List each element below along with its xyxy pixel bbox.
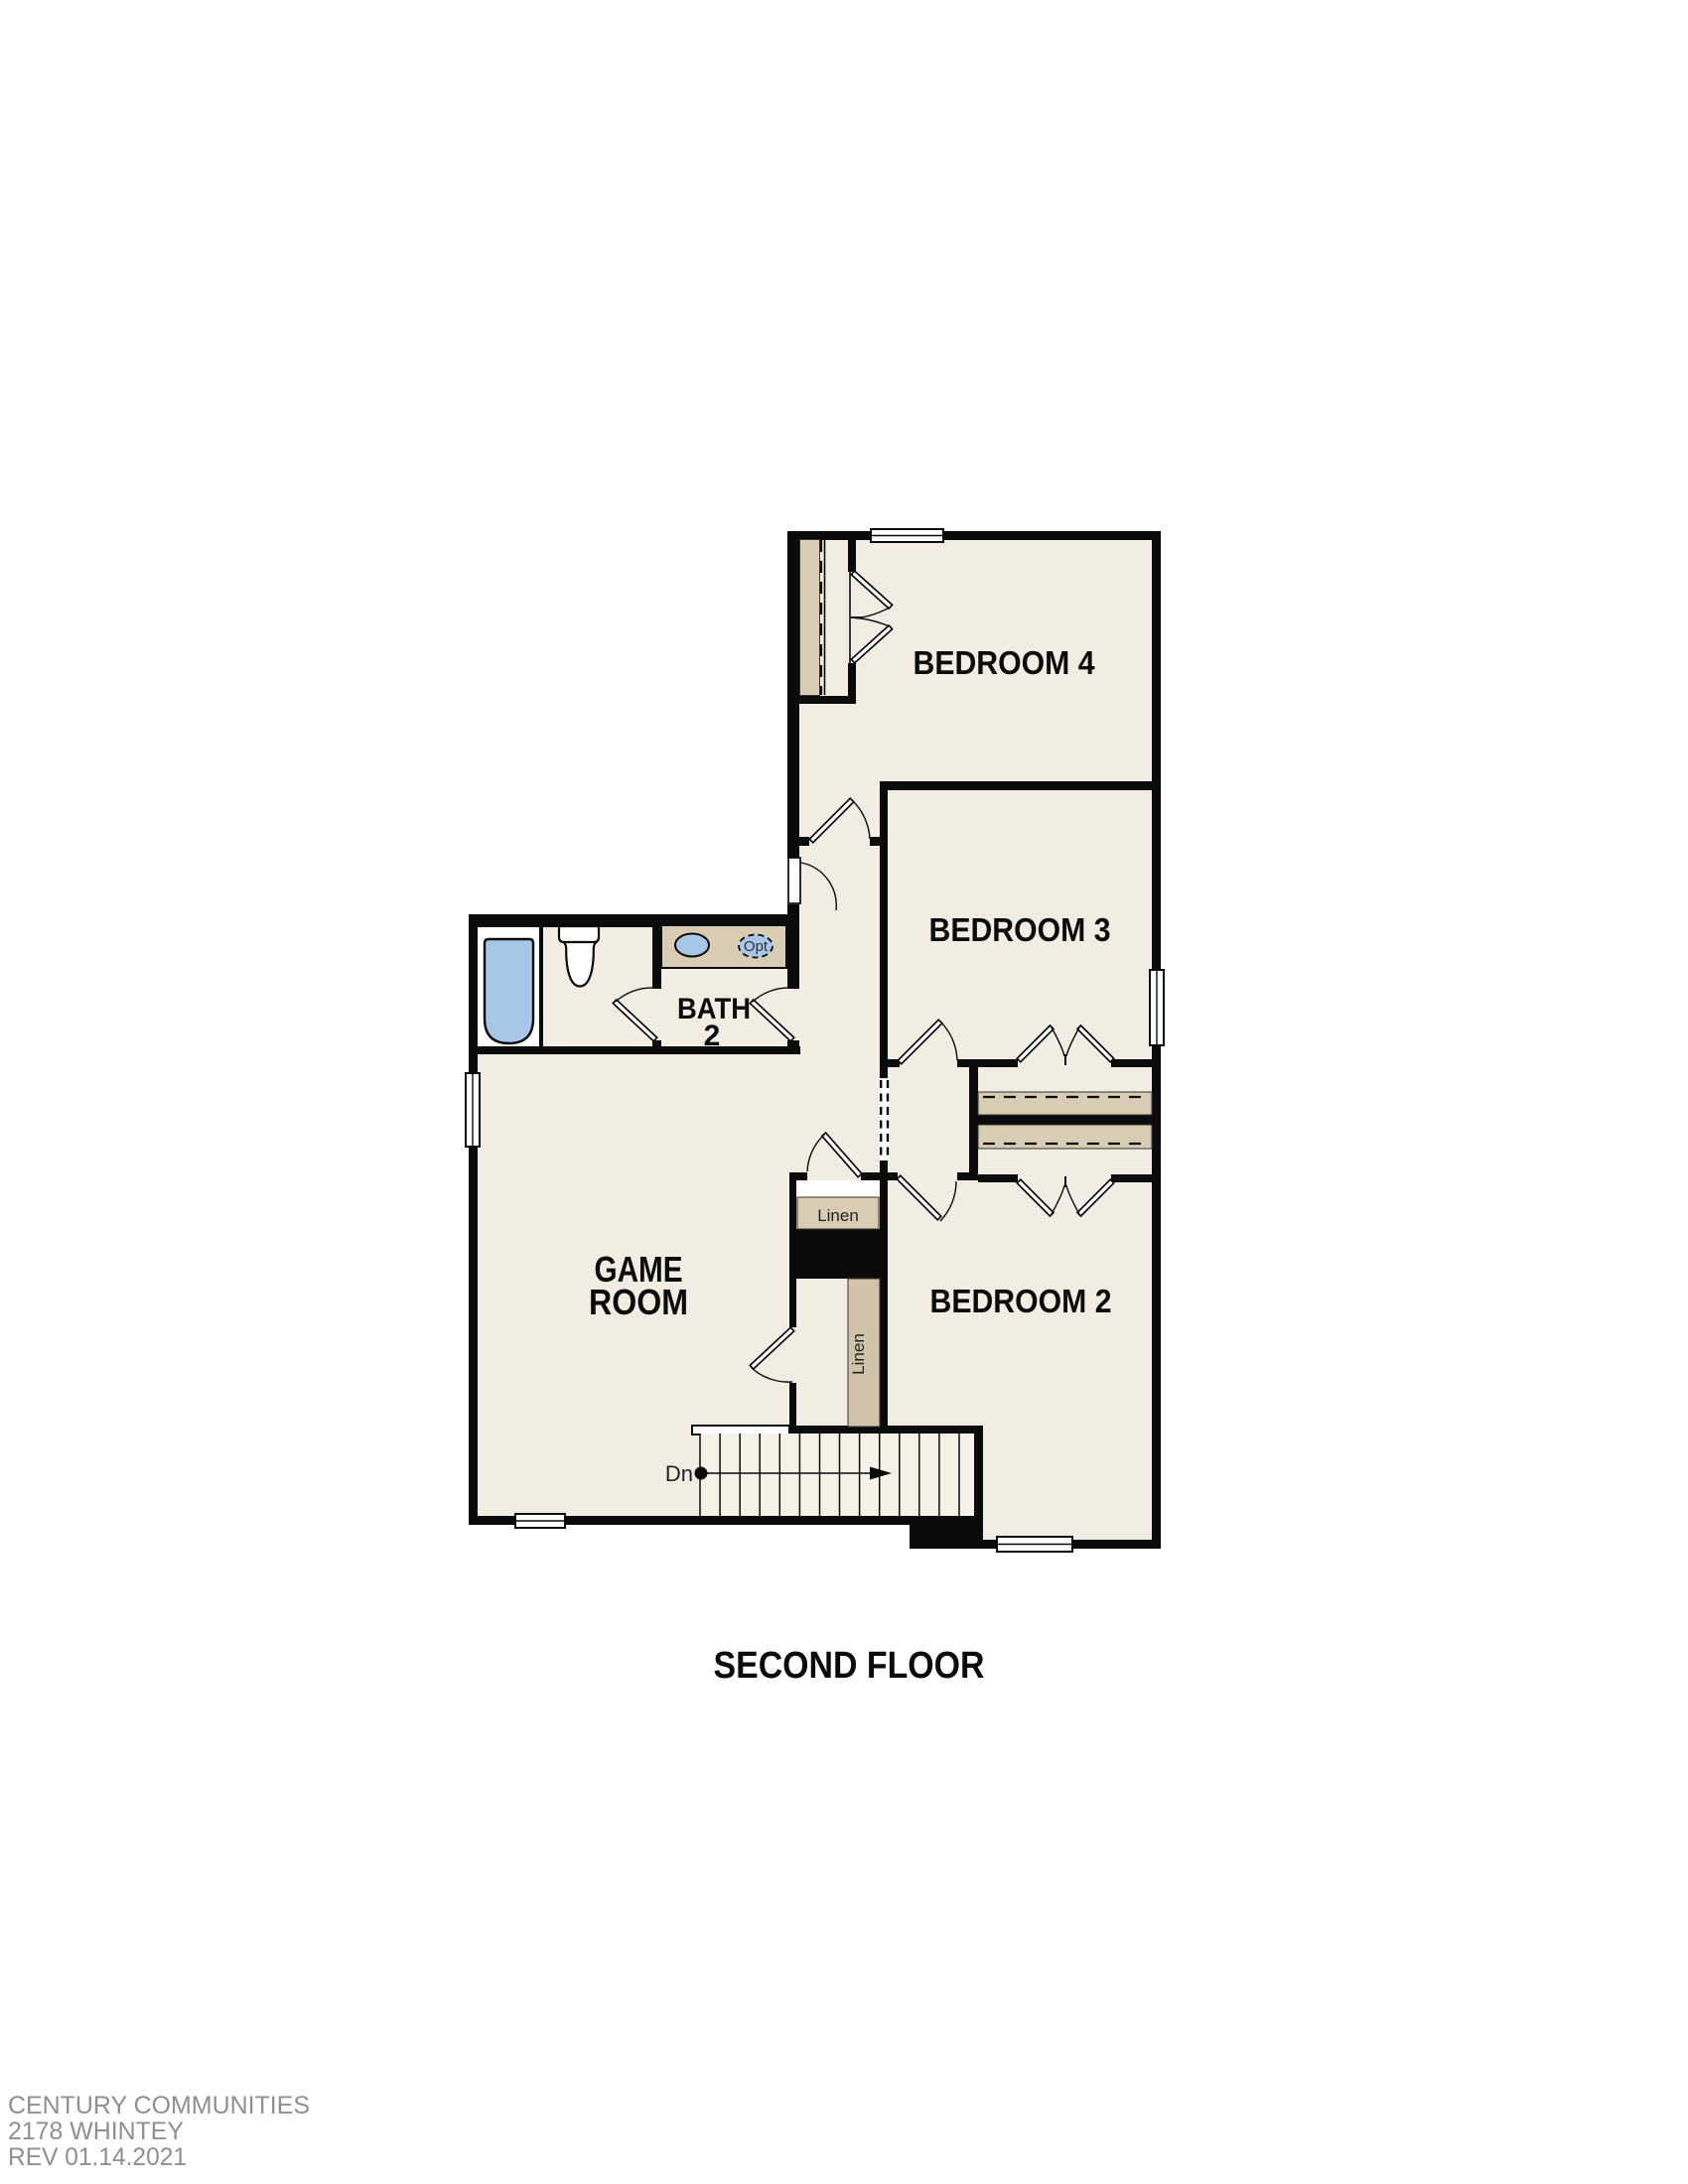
svg-text:2178 WHINTEY: 2178 WHINTEY xyxy=(8,2117,184,2145)
svg-text:BEDROOM 3: BEDROOM 3 xyxy=(929,911,1111,948)
svg-text:CENTURY COMMUNITIES: CENTURY COMMUNITIES xyxy=(8,2092,310,2119)
svg-text:Opt: Opt xyxy=(744,938,769,955)
svg-text:BEDROOM 2: BEDROOM 2 xyxy=(930,1283,1112,1319)
svg-text:BEDROOM 4: BEDROOM 4 xyxy=(914,644,1096,681)
svg-text:Linen: Linen xyxy=(817,1206,859,1225)
svg-text:SECOND FLOOR: SECOND FLOOR xyxy=(714,1645,985,1687)
svg-text:2: 2 xyxy=(704,1020,721,1052)
svg-text:Linen: Linen xyxy=(849,1333,868,1375)
svg-text:ROOM: ROOM xyxy=(589,1282,688,1322)
svg-text:Dn: Dn xyxy=(665,1461,693,1486)
svg-text:REV 01.14.2021: REV 01.14.2021 xyxy=(8,2143,187,2171)
